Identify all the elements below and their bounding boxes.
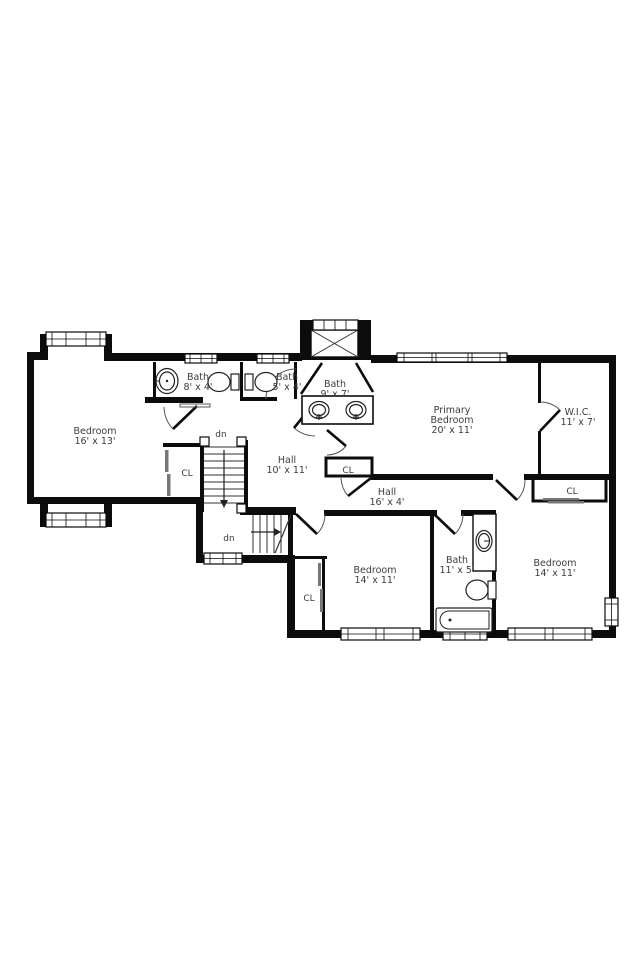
label-closet-left: CL bbox=[181, 469, 192, 479]
label-closet-hall: CL bbox=[342, 466, 353, 476]
window-bedroom-right bbox=[508, 628, 592, 640]
door-primary-bedroom bbox=[327, 430, 346, 455]
label-closet-bottom: CL bbox=[303, 594, 314, 604]
staircase-lower-flight bbox=[251, 515, 291, 553]
door-wic bbox=[540, 402, 560, 431]
window-bay-bottom bbox=[46, 513, 106, 527]
door-bath-11x5 bbox=[434, 514, 463, 534]
label-hall-upper-dims: 10' x 11' bbox=[266, 465, 307, 476]
label-primary-dims: 20' x 11' bbox=[431, 425, 472, 436]
label-bedroom-right-dims: 14' x 11' bbox=[534, 568, 575, 579]
staircase-upper-flight bbox=[200, 437, 246, 513]
toilet-bath-8x4 bbox=[208, 373, 239, 392]
vanity-bath-9x7 bbox=[302, 396, 373, 424]
stairs-down-arrow bbox=[220, 500, 228, 508]
sink-bath-8x4 bbox=[156, 369, 178, 394]
door-bedroom-mid bbox=[296, 514, 325, 534]
window-bath-8x4 bbox=[185, 354, 217, 363]
door-bedroom-tl bbox=[164, 406, 197, 429]
stairs-right-arrow bbox=[274, 528, 281, 536]
label-wic-dims: 11' x 7' bbox=[560, 417, 595, 428]
label-stairs-down-upper: dn bbox=[215, 430, 226, 440]
label-bedroom-mid-dims: 14' x 11' bbox=[354, 575, 395, 586]
door-bath-8x4-pocket bbox=[180, 404, 210, 407]
window-bay-top bbox=[46, 332, 106, 346]
label-hall-lower-dims: 16' x 4' bbox=[369, 497, 404, 508]
window-shower bbox=[313, 320, 358, 330]
window-primary bbox=[397, 353, 507, 362]
bathtub bbox=[436, 608, 492, 632]
window-landing bbox=[204, 553, 242, 564]
label-stairs-down-lower: dn bbox=[223, 534, 234, 544]
window-bath-5x4 bbox=[257, 354, 289, 363]
label-closet-right: CL bbox=[566, 487, 577, 497]
window-right-wall bbox=[605, 598, 618, 626]
label-bath9-dims: 9' x 7' bbox=[321, 389, 350, 400]
floor-plan-page: Bedroom 16' x 13' Bath 8' x 4' Bath 5' x… bbox=[0, 0, 639, 959]
label-bath11-dims: 11' x 5' bbox=[439, 565, 474, 576]
vanity-bath-11x5 bbox=[473, 514, 496, 571]
label-bath5-dims: 5' x 4' bbox=[273, 382, 302, 393]
closet-bottom bbox=[295, 556, 327, 630]
window-bedroom-mid bbox=[341, 628, 420, 640]
toilet-bath-11x5 bbox=[466, 580, 496, 600]
door-closet-hall bbox=[341, 478, 371, 496]
label-bedroom-tl-dims: 16' x 13' bbox=[74, 436, 115, 447]
label-bath8-dims: 8' x 4' bbox=[184, 382, 213, 393]
door-bedroom-right bbox=[496, 480, 525, 500]
floor-plan: Bedroom 16' x 13' Bath 8' x 4' Bath 5' x… bbox=[0, 0, 639, 959]
shower bbox=[311, 330, 358, 357]
